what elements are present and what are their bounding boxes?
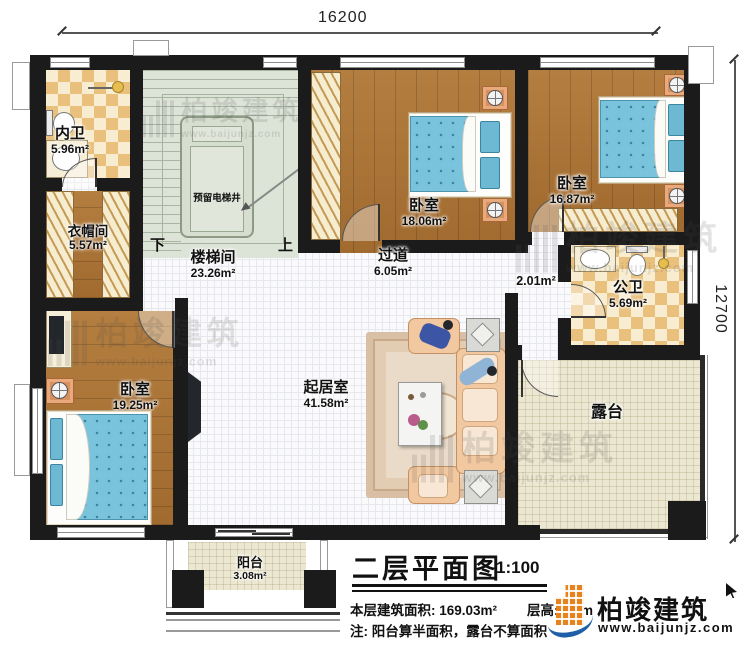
corridor-label: 过道 6.05m² bbox=[374, 248, 412, 278]
bedroom-right-blanket bbox=[654, 100, 666, 178]
bedroom-middle-wardrobe bbox=[311, 72, 341, 240]
bedroom-middle-label: 卧室 18.06m² bbox=[402, 198, 447, 228]
living-room-coffee-table bbox=[398, 382, 442, 446]
table-leaves-icon bbox=[418, 420, 428, 430]
floor-plan-canvas: 预留电梯井 bbox=[0, 0, 750, 653]
corridor-name: 过道 bbox=[374, 248, 412, 265]
public-bath-shower-head bbox=[658, 258, 669, 269]
stair-hall-name: 楼梯间 bbox=[190, 250, 235, 267]
floor-area-text: 本层建筑面积: 169.03m² bbox=[350, 599, 497, 619]
bay-top bbox=[133, 40, 169, 56]
bedroom-right-lamp-2-icon bbox=[669, 188, 685, 204]
wall-living-east bbox=[505, 293, 518, 540]
ensuite-bath-label: 内卫 5.96m² bbox=[51, 126, 89, 156]
bedroom-middle-door-leaf bbox=[378, 204, 380, 241]
balcony-railing-line-1 bbox=[166, 612, 340, 615]
stair-hall-area: 23.26m² bbox=[190, 267, 235, 280]
wall-stair-west bbox=[130, 55, 143, 311]
dimension-tick bbox=[57, 26, 67, 36]
ensuite-shower-head bbox=[112, 81, 124, 93]
wall-exterior-right bbox=[684, 55, 700, 360]
living-room-area: 41.58m² bbox=[303, 397, 348, 410]
logo-swoosh-icon bbox=[547, 615, 595, 640]
wall-terrace-north-b bbox=[558, 345, 700, 360]
bedroom-left-area: 19.25m² bbox=[113, 399, 158, 412]
sill-west bbox=[14, 384, 30, 476]
window-stair bbox=[263, 57, 297, 68]
dimension-top-value: 16200 bbox=[318, 9, 368, 27]
window-ensuite bbox=[50, 57, 90, 68]
armchair-bottom-cushion bbox=[418, 474, 448, 498]
cloakroom-name: 衣帽间 bbox=[68, 224, 109, 239]
bedroom-left-label: 卧室 19.25m² bbox=[113, 382, 158, 412]
company-website: www.baijunjz.com bbox=[598, 620, 734, 635]
bedroom-middle-area: 18.06m² bbox=[402, 215, 447, 228]
sill-top-left bbox=[12, 62, 30, 110]
living-room-tv bbox=[188, 372, 201, 442]
dimension-right-value: 12700 bbox=[711, 279, 729, 339]
dimension-line-top bbox=[62, 32, 658, 34]
bedroom-middle-blanket bbox=[462, 116, 476, 192]
living-room-name: 起居室 bbox=[303, 380, 348, 397]
wall-ensuite-south-b bbox=[97, 178, 130, 191]
wall-terrace-north-a bbox=[518, 345, 522, 360]
dimension-tick bbox=[651, 26, 661, 36]
wall-bedroom-left-north-a bbox=[30, 298, 138, 311]
bedroom-middle-lamp-1-icon bbox=[487, 90, 503, 106]
public-bath-toilet-tank bbox=[626, 246, 648, 253]
plan-scale: 1:100 bbox=[496, 558, 539, 578]
wall-stair-east bbox=[298, 55, 311, 253]
stair-down-label: 下 bbox=[150, 234, 165, 255]
elevator-shaft-label: 预留电梯井 bbox=[193, 190, 241, 204]
bedroom-right-lamp-1-icon bbox=[669, 77, 685, 93]
bedroom-middle-name: 卧室 bbox=[402, 198, 447, 215]
window-bedroom-left-west bbox=[32, 388, 43, 474]
wall-public-bath-west-a bbox=[558, 245, 571, 282]
sofa-cushion-3 bbox=[462, 426, 498, 456]
living-room-label: 起居室 41.58m² bbox=[303, 380, 348, 410]
bay-top-right bbox=[688, 46, 714, 84]
dimension-line-right bbox=[734, 60, 736, 542]
bedroom-left-name: 卧室 bbox=[113, 382, 158, 399]
bedroom-right-area: 16.87m² bbox=[550, 193, 595, 206]
balcony-railing-line-2 bbox=[166, 619, 340, 621]
public-bath-name: 公卫 bbox=[609, 280, 647, 297]
ensuite-bath-name: 内卫 bbox=[51, 126, 89, 143]
balcony-name: 阳台 bbox=[233, 556, 266, 571]
terrace-label: 露台 bbox=[591, 404, 623, 422]
bedroom-left-pillow-2 bbox=[50, 464, 63, 506]
title-underline-2 bbox=[352, 590, 547, 592]
bedroom-right-pillow-2 bbox=[668, 140, 685, 172]
bedroom-middle-pillow-2 bbox=[480, 157, 500, 189]
public-bath-toilet-bowl bbox=[628, 254, 646, 276]
public-bath-sink bbox=[580, 249, 610, 269]
public-bath-label: 公卫 5.69m² bbox=[609, 280, 647, 310]
balcony-railing-line-3 bbox=[166, 630, 340, 632]
wall-bedroom-right-south-a bbox=[528, 232, 532, 245]
terrace-name: 露台 bbox=[591, 404, 623, 422]
balcony-area: 3.08m² bbox=[233, 571, 266, 583]
elevator-shaft-cab-top bbox=[192, 126, 242, 142]
person-sitting-head bbox=[443, 320, 453, 330]
balcony-pillar-left bbox=[172, 570, 204, 608]
window-bedroom-right bbox=[540, 57, 655, 68]
table-cup2-icon bbox=[420, 392, 426, 398]
bedroom-left-dresser-tv bbox=[49, 316, 64, 354]
mouse-cursor-icon bbox=[726, 583, 737, 598]
plan-title: 二层平面图 bbox=[352, 547, 502, 586]
bedroom-right-label: 卧室 16.87m² bbox=[550, 176, 595, 206]
terrace-door-leaf bbox=[521, 360, 523, 397]
window-bedroom-left-south bbox=[57, 527, 145, 538]
person-lounging-head bbox=[487, 366, 497, 376]
wall-ensuite-south-a bbox=[30, 178, 62, 191]
wall-bedroom-middle-south-a bbox=[298, 240, 340, 253]
balcony-pillar-right bbox=[304, 570, 336, 608]
title-underline-1 bbox=[352, 584, 547, 587]
terrace-parapet-outline bbox=[707, 355, 708, 539]
ensuite-door-leaf bbox=[95, 158, 97, 187]
bedroom-middle-pillow-1 bbox=[480, 121, 500, 153]
window-public-bath bbox=[687, 250, 698, 304]
sliding-door-panel-2 bbox=[252, 533, 290, 535]
ensuite-bath-area: 5.96m² bbox=[51, 143, 89, 156]
wall-bedroom-left-east bbox=[173, 311, 188, 540]
terrace-corner-pillar bbox=[668, 501, 706, 540]
balcony-label: 阳台 3.08m² bbox=[233, 556, 266, 582]
bedroom-middle-lamp-2-icon bbox=[487, 202, 503, 218]
bedroom-left-pillow-1 bbox=[50, 418, 63, 460]
elevator-shaft-cab bbox=[190, 146, 244, 232]
public-bath-door-leaf bbox=[571, 316, 606, 318]
sliding-door-panel-1 bbox=[218, 530, 256, 532]
bedroom-left-door-leaf bbox=[172, 311, 174, 348]
stair-hall-label: 楼梯间 23.26m² bbox=[190, 250, 235, 280]
bedroom-right-name: 卧室 bbox=[550, 176, 595, 193]
table-cup-icon bbox=[408, 394, 414, 400]
wall-bedroom-left-north-b bbox=[175, 298, 188, 311]
window-bedroom-middle bbox=[340, 57, 465, 68]
wall-bedroom-right-south-b bbox=[564, 232, 700, 245]
bedroom-right-wardrobe bbox=[558, 208, 678, 232]
corridor-area: 6.05m² bbox=[374, 265, 412, 278]
stair-up-label: 上 bbox=[278, 234, 293, 255]
cloakroom-area: 5.57m² bbox=[68, 239, 109, 252]
bedroom-left-lamp-icon bbox=[51, 382, 68, 399]
company-logo-icon bbox=[548, 585, 594, 639]
public-bath-area: 5.69m² bbox=[609, 297, 647, 310]
small-hall-area: 2.01m² bbox=[516, 274, 556, 288]
cloakroom-label: 衣帽间 5.57m² bbox=[68, 224, 109, 253]
sofa-cushion-2 bbox=[462, 388, 498, 422]
small-hall-label: 2.01m² bbox=[516, 274, 556, 288]
wall-between-bedrooms bbox=[515, 55, 528, 245]
note-text: 注: 阳台算半面积，露台不算面积 bbox=[350, 620, 547, 640]
bedroom-right-pillow-1 bbox=[668, 104, 685, 136]
